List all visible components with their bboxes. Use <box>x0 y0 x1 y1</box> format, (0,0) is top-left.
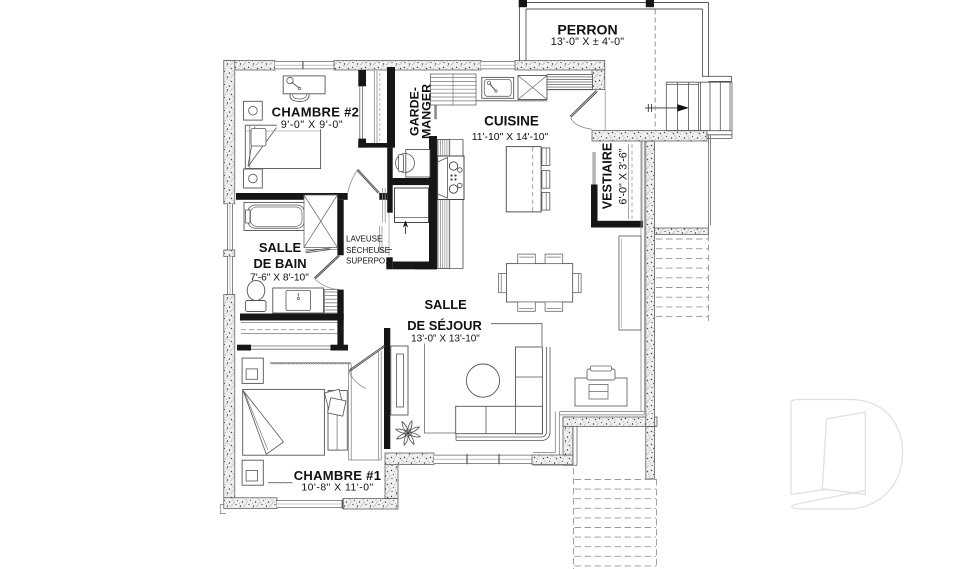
svg-text:11'-10" X 14'-10": 11'-10" X 14'-10" <box>472 132 549 143</box>
svg-text:VESTIAIRE: VESTIAIRE <box>601 143 615 209</box>
svg-text:13'-0" X ± 4'-0": 13'-0" X ± 4'-0" <box>551 36 625 48</box>
svg-text:SUPERPO.: SUPERPO. <box>346 257 387 266</box>
svg-text:CUISINE: CUISINE <box>484 114 539 129</box>
svg-text:6'-0" X 3'-6": 6'-0" X 3'-6" <box>618 148 630 204</box>
svg-text:10'-8" X 11'-0": 10'-8" X 11'-0" <box>301 483 373 494</box>
svg-text:MANGER: MANGER <box>419 84 433 139</box>
svg-text:SÉCHEUSE: SÉCHEUSE <box>346 246 390 255</box>
svg-text:9'-0" X 9'-0": 9'-0" X 9'-0" <box>281 119 343 131</box>
svg-text:LAVEUSE: LAVEUSE <box>346 235 382 244</box>
svg-text:7'-6" X 8'-10": 7'-6" X 8'-10" <box>250 272 309 283</box>
svg-text:CHAMBRE #1: CHAMBRE #1 <box>294 468 382 483</box>
svg-text:13'-0" X 13'-10": 13'-0" X 13'-10" <box>411 333 480 344</box>
svg-text:DE SÉJOUR: DE SÉJOUR <box>407 318 482 333</box>
svg-text:SALLE: SALLE <box>259 240 302 255</box>
svg-text:CHAMBRE #2: CHAMBRE #2 <box>272 105 360 120</box>
svg-text:DE BAIN: DE BAIN <box>254 256 307 271</box>
svg-text:SALLE: SALLE <box>424 297 467 312</box>
svg-text:PERRON: PERRON <box>557 21 617 37</box>
